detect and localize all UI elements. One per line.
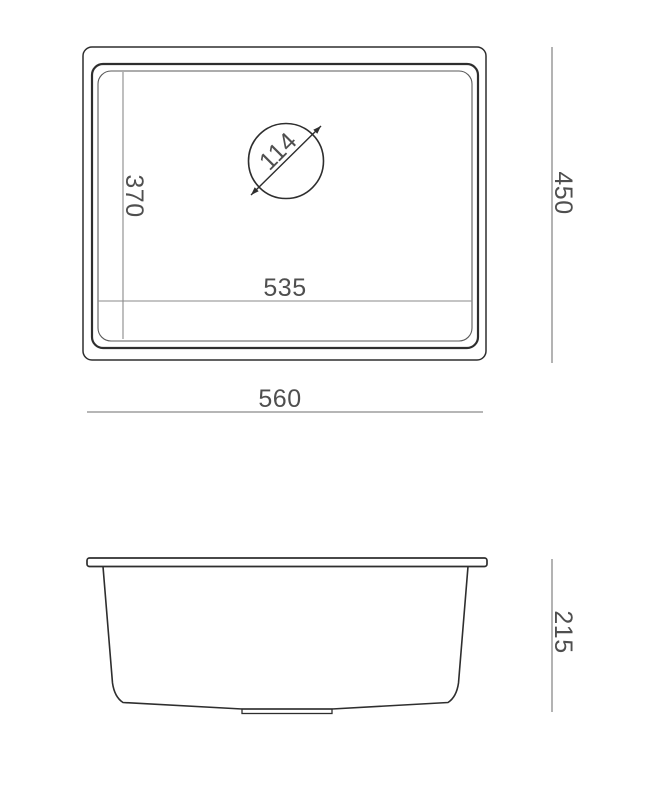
overall-width-label: 560 [258, 385, 301, 413]
bowl-rim-outer-outline [92, 64, 478, 348]
drain-diameter-label: 114 [254, 127, 303, 176]
overall-height-label: 215 [549, 610, 577, 653]
side-view-rim-flange [87, 558, 487, 567]
sink-spec-sheet: 370 114 535 450 560 215 [0, 0, 646, 800]
dimension-labels: 370 114 535 450 560 215 [120, 127, 577, 654]
overall-depth-label: 450 [549, 171, 577, 214]
bowl-width-label: 535 [263, 274, 306, 302]
side-view [87, 558, 487, 714]
dimension-lines [87, 47, 552, 712]
side-view-bowl-profile [103, 567, 468, 710]
bowl-depth-label: 370 [120, 174, 148, 217]
sink-technical-drawing: 370 114 535 450 560 215 [0, 0, 646, 800]
